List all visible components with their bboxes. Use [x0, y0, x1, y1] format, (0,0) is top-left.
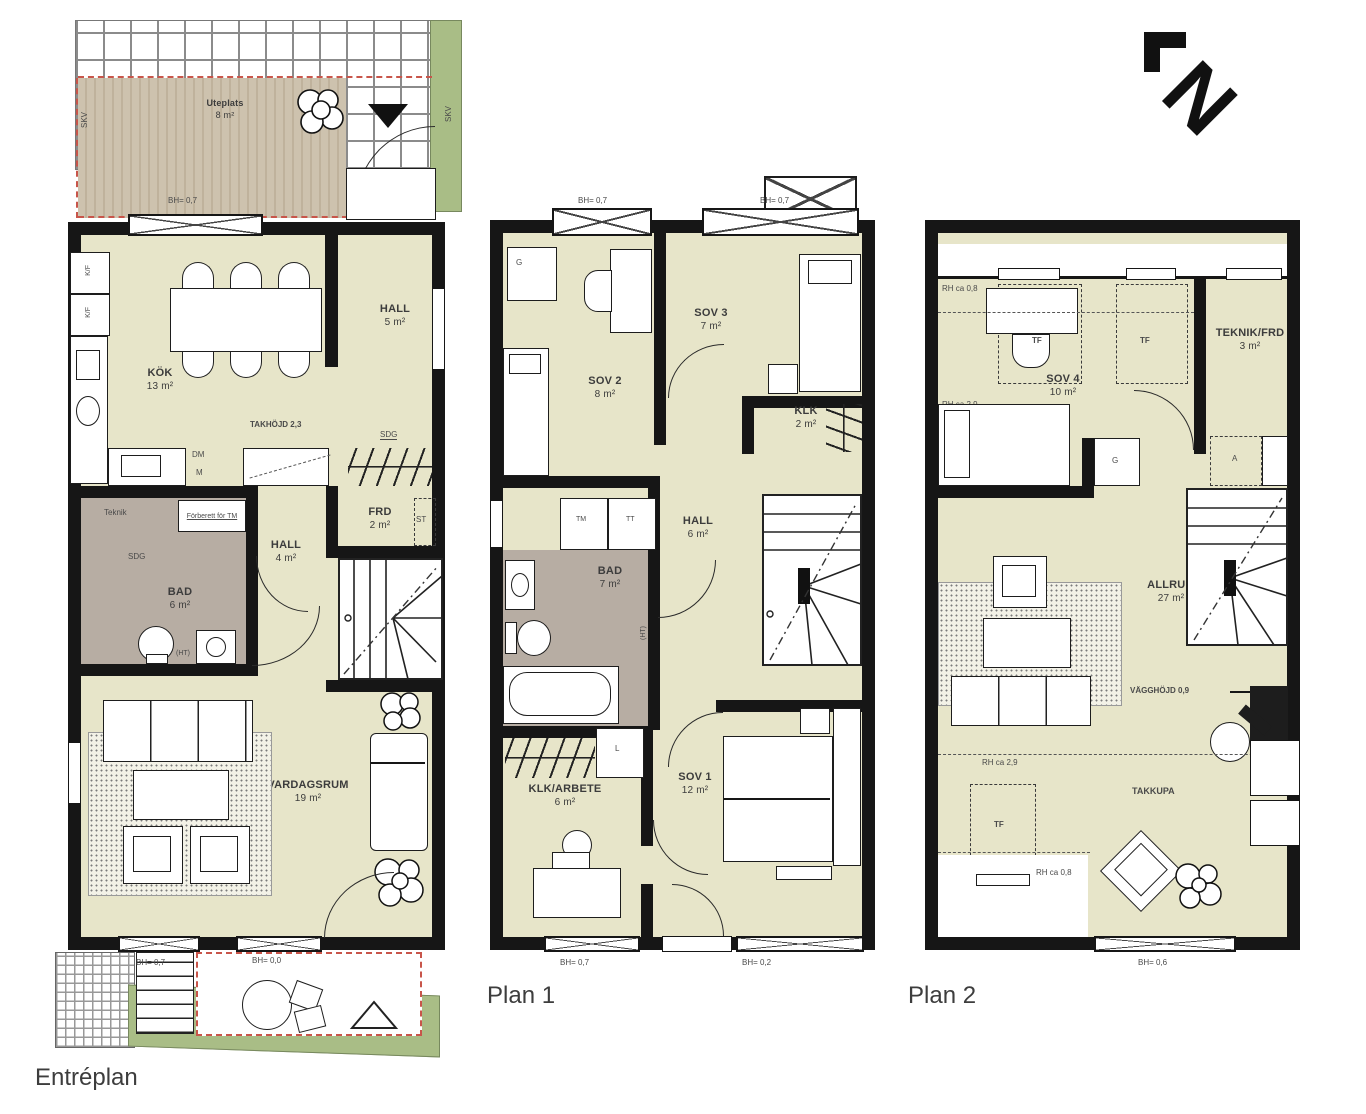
- sdg-annotation: SDG: [380, 430, 397, 440]
- nightstand: [768, 364, 798, 394]
- window: [736, 936, 864, 952]
- dormer-niche: [1250, 800, 1300, 846]
- bh-annotation: BH= 0,6: [1138, 958, 1167, 967]
- st-label: ST: [416, 515, 426, 524]
- wall: [1194, 276, 1206, 454]
- entry-platform: [346, 168, 436, 220]
- tf-label: TF: [1140, 336, 1150, 345]
- sofa: [103, 700, 253, 762]
- window: [118, 936, 200, 952]
- g-label: G: [516, 258, 522, 267]
- window: [68, 742, 81, 804]
- room-area: 12 m²: [682, 784, 709, 797]
- window: [1226, 268, 1282, 280]
- wall: [503, 476, 660, 488]
- headboard: [833, 708, 861, 866]
- room-name: SOV 2: [588, 374, 621, 388]
- room-area: 10 m²: [1050, 386, 1077, 399]
- teknik-label: Teknik: [104, 508, 127, 517]
- plot-boundary-left: [76, 78, 78, 218]
- wall: [326, 546, 445, 558]
- door-opening: [662, 936, 732, 952]
- rh-annotation: RH ca 0,8: [942, 284, 978, 293]
- room-label-kok: KÖK 13 m²: [115, 366, 205, 393]
- window: [1126, 268, 1176, 280]
- plan-title-plan1: Plan 1: [487, 982, 555, 1010]
- wall: [325, 235, 338, 367]
- room-name: SOV 1: [678, 770, 711, 784]
- ceiling-height-line: [938, 312, 1194, 313]
- window: [128, 214, 263, 236]
- roof-marker-icon: [368, 104, 408, 128]
- seat: [133, 836, 171, 872]
- room-name: HALL: [683, 514, 713, 528]
- pillow: [509, 354, 541, 374]
- room-label-bad: BAD 6 m²: [150, 585, 210, 612]
- room-area: 13 m²: [147, 380, 174, 393]
- room-name: TEKNIK/FRD: [1216, 326, 1285, 340]
- desk: [610, 249, 652, 333]
- room-area: 2 m²: [370, 519, 391, 532]
- room-name: SOV 4: [1046, 372, 1079, 386]
- room-label-sov2: SOV 2 8 m²: [570, 374, 640, 401]
- room-name: BAD: [598, 564, 622, 578]
- wall: [938, 486, 1090, 498]
- room-name: KLK: [794, 404, 817, 418]
- bench: [776, 866, 832, 880]
- bh-annotation: BH= 0,7: [560, 958, 589, 967]
- tree-icon: [288, 80, 350, 142]
- forberett-label: Förberett för TM: [187, 513, 237, 520]
- staircase: [338, 558, 443, 680]
- kf-label: K/F: [85, 307, 92, 318]
- bed-split-line: [724, 798, 830, 800]
- window: [552, 208, 652, 236]
- dm-label: DM: [192, 450, 204, 459]
- plan-title-plan2: Plan 2: [908, 982, 976, 1010]
- window: [490, 500, 503, 548]
- bathtub: [503, 666, 619, 724]
- window: [544, 936, 640, 952]
- pillow: [944, 410, 970, 478]
- ht-label: (HT): [640, 626, 647, 640]
- armchair: [123, 826, 183, 884]
- armchair: [190, 826, 250, 884]
- washbasin-icon: [505, 560, 535, 610]
- room-area: 3 m²: [1240, 340, 1261, 353]
- window: [1094, 936, 1236, 952]
- appliance-inner: [121, 455, 161, 477]
- plan-title-entreplan: Entréplan: [35, 1064, 138, 1092]
- tm-label: TM: [576, 516, 586, 523]
- room-name: SOV 3: [694, 306, 727, 320]
- bh-annotation: BH= 0,0: [252, 956, 281, 965]
- bh-annotation: BH= 0,7: [136, 958, 165, 967]
- room-area: 6 m²: [555, 796, 576, 809]
- washbasin-icon: [196, 630, 236, 664]
- dormer-niche: [1250, 740, 1300, 796]
- rh-annotation: RH ca 0,8: [1036, 868, 1072, 877]
- room-label-bad7: BAD 7 m²: [580, 564, 640, 591]
- desk-chair: [1012, 334, 1050, 368]
- ceiling-height-line: [938, 754, 1288, 755]
- pillow: [808, 260, 852, 284]
- tf-label: TF: [994, 820, 1004, 829]
- l-label: L: [615, 744, 619, 753]
- vagghojd-annotation: VÄGGHÖJD 0,9: [1130, 686, 1189, 695]
- freezer-cabinet: K/F: [70, 294, 110, 336]
- room-name: HALL: [271, 538, 301, 552]
- wall: [654, 233, 666, 445]
- room-area: 2 m²: [796, 418, 817, 431]
- window: [998, 268, 1060, 280]
- chaise-line: [371, 762, 425, 764]
- dining-table: [170, 288, 322, 352]
- basin-bowl: [511, 573, 529, 597]
- bed-single: [799, 254, 861, 392]
- window: [236, 936, 322, 952]
- floorplan-canvas: SKV SKV Uteplats 8 m² BH= 0,7 K/F K/F KÖ…: [0, 0, 1366, 1114]
- rh-annotation: RH ca 2,9: [982, 758, 1018, 767]
- desk-chair: [584, 270, 612, 312]
- bh-annotation: BH= 0,7: [168, 196, 197, 205]
- bed-single: [503, 348, 549, 476]
- chaise-lounge: [370, 733, 428, 851]
- room-label-hall5: HALL 5 m²: [360, 302, 430, 329]
- room-area: 19 m²: [295, 792, 322, 805]
- seat: [1114, 843, 1168, 897]
- g-closet: [507, 247, 557, 301]
- room-label-sov4: SOV 4 10 m²: [1028, 372, 1098, 399]
- toilet-tank: [505, 622, 517, 654]
- room-area: 6 m²: [170, 599, 191, 612]
- window: [432, 288, 445, 370]
- bh-annotation: BH= 0,2: [742, 958, 771, 967]
- room-name: BAD: [168, 585, 192, 599]
- dishwasher-cabinet: [108, 448, 186, 486]
- room-area: 7 m²: [701, 320, 722, 333]
- toilet-tank: [146, 654, 168, 664]
- room-area: 5 m²: [385, 316, 406, 329]
- bh-annotation: BH= 0,7: [578, 196, 607, 205]
- tf-label: TF: [1032, 336, 1042, 345]
- wardrobe-rail: [826, 404, 862, 452]
- takhojd-annotation: TAKHÖJD 2,3: [250, 420, 301, 429]
- plot-boundary-top: [78, 76, 432, 78]
- staircase: [762, 494, 862, 666]
- skv-label-right: SKV: [444, 106, 453, 122]
- bench: [976, 874, 1030, 886]
- room-name: VARDAGSRUM: [267, 778, 348, 792]
- ht-label: (HT): [176, 650, 190, 657]
- tub-inner: [509, 672, 611, 716]
- room-label-teknikfrd: TEKNIK/FRD 3 m²: [1206, 326, 1294, 353]
- wall: [326, 486, 338, 546]
- desk: [533, 868, 621, 918]
- a-label: A: [1232, 454, 1237, 463]
- takkupa-label: TAKKUPA: [1132, 786, 1175, 796]
- room-label-sov3: SOV 3 7 m²: [676, 306, 746, 333]
- wall: [641, 884, 653, 937]
- corner-closet: [1262, 436, 1288, 486]
- tt-label: TT: [626, 516, 635, 523]
- triangle-marker: [348, 998, 400, 1032]
- bed-double: [723, 736, 833, 862]
- room-area: 6 m²: [688, 528, 709, 541]
- room-label-frd: FRD 2 m²: [350, 505, 410, 532]
- bed-single: [938, 404, 1070, 486]
- l-closet: [596, 728, 644, 778]
- m-label: M: [196, 468, 203, 477]
- skv-label-left: SKV: [80, 112, 89, 128]
- window: [702, 208, 859, 236]
- room-name: KLK/ARBETE: [529, 782, 602, 796]
- basin-bowl: [206, 637, 226, 657]
- room-area: 7 m²: [600, 578, 621, 591]
- room-area: 8 m²: [595, 388, 616, 401]
- patio-grid: [55, 952, 135, 1048]
- armchair: [993, 556, 1047, 608]
- plant-icon: [372, 684, 428, 736]
- roof-window-zone: [1116, 284, 1188, 384]
- room-label-uteplats: Uteplats 8 m²: [185, 98, 265, 121]
- wall: [81, 486, 246, 498]
- room-name: Uteplats: [206, 98, 243, 110]
- office-chair: [1210, 722, 1250, 762]
- seat: [1002, 565, 1036, 597]
- plant-icon: [1166, 856, 1230, 916]
- sdg-annotation: SDG: [128, 552, 145, 561]
- kf-label: K/F: [85, 265, 92, 276]
- room-name: KÖK: [147, 366, 172, 380]
- dryer-cabinet: [608, 498, 656, 550]
- north-letter: N: [1145, 43, 1248, 141]
- terrace-table: [242, 980, 292, 1030]
- room-label-klkarbete: KLK/ARBETE 6 m²: [510, 782, 620, 809]
- ceiling-height-line: [938, 852, 1090, 853]
- forberett-box: Förberett för TM: [178, 500, 246, 532]
- staircase: [1186, 488, 1288, 646]
- room-name: HALL: [380, 302, 410, 316]
- bh-annotation: BH= 0,7: [760, 196, 789, 205]
- desk: [986, 288, 1078, 334]
- wall: [1082, 438, 1094, 498]
- room-area: 8 m²: [216, 110, 235, 122]
- wardrobe-rail: [348, 448, 432, 486]
- wall: [81, 664, 258, 676]
- wardrobe-rail: [505, 738, 595, 778]
- g-label: G: [1112, 456, 1118, 465]
- north-arrow-icon: N: [1138, 26, 1248, 141]
- nightstand: [800, 708, 830, 734]
- room-label-hall6: HALL 6 m²: [666, 514, 730, 541]
- tv-table: [983, 618, 1071, 668]
- stove-icon: [76, 396, 100, 426]
- fridge-cabinet: K/F: [70, 252, 110, 294]
- wall: [742, 396, 754, 454]
- room-name: FRD: [368, 505, 391, 519]
- room-label-sov1: SOV 1 12 m²: [660, 770, 730, 797]
- washer-cabinet: [560, 498, 608, 550]
- room-area: 27 m²: [1158, 592, 1185, 605]
- sofa: [951, 676, 1091, 726]
- seat: [200, 836, 238, 872]
- coffee-table: [133, 770, 229, 820]
- sink-icon: [76, 350, 100, 380]
- toilet-icon: [517, 620, 551, 656]
